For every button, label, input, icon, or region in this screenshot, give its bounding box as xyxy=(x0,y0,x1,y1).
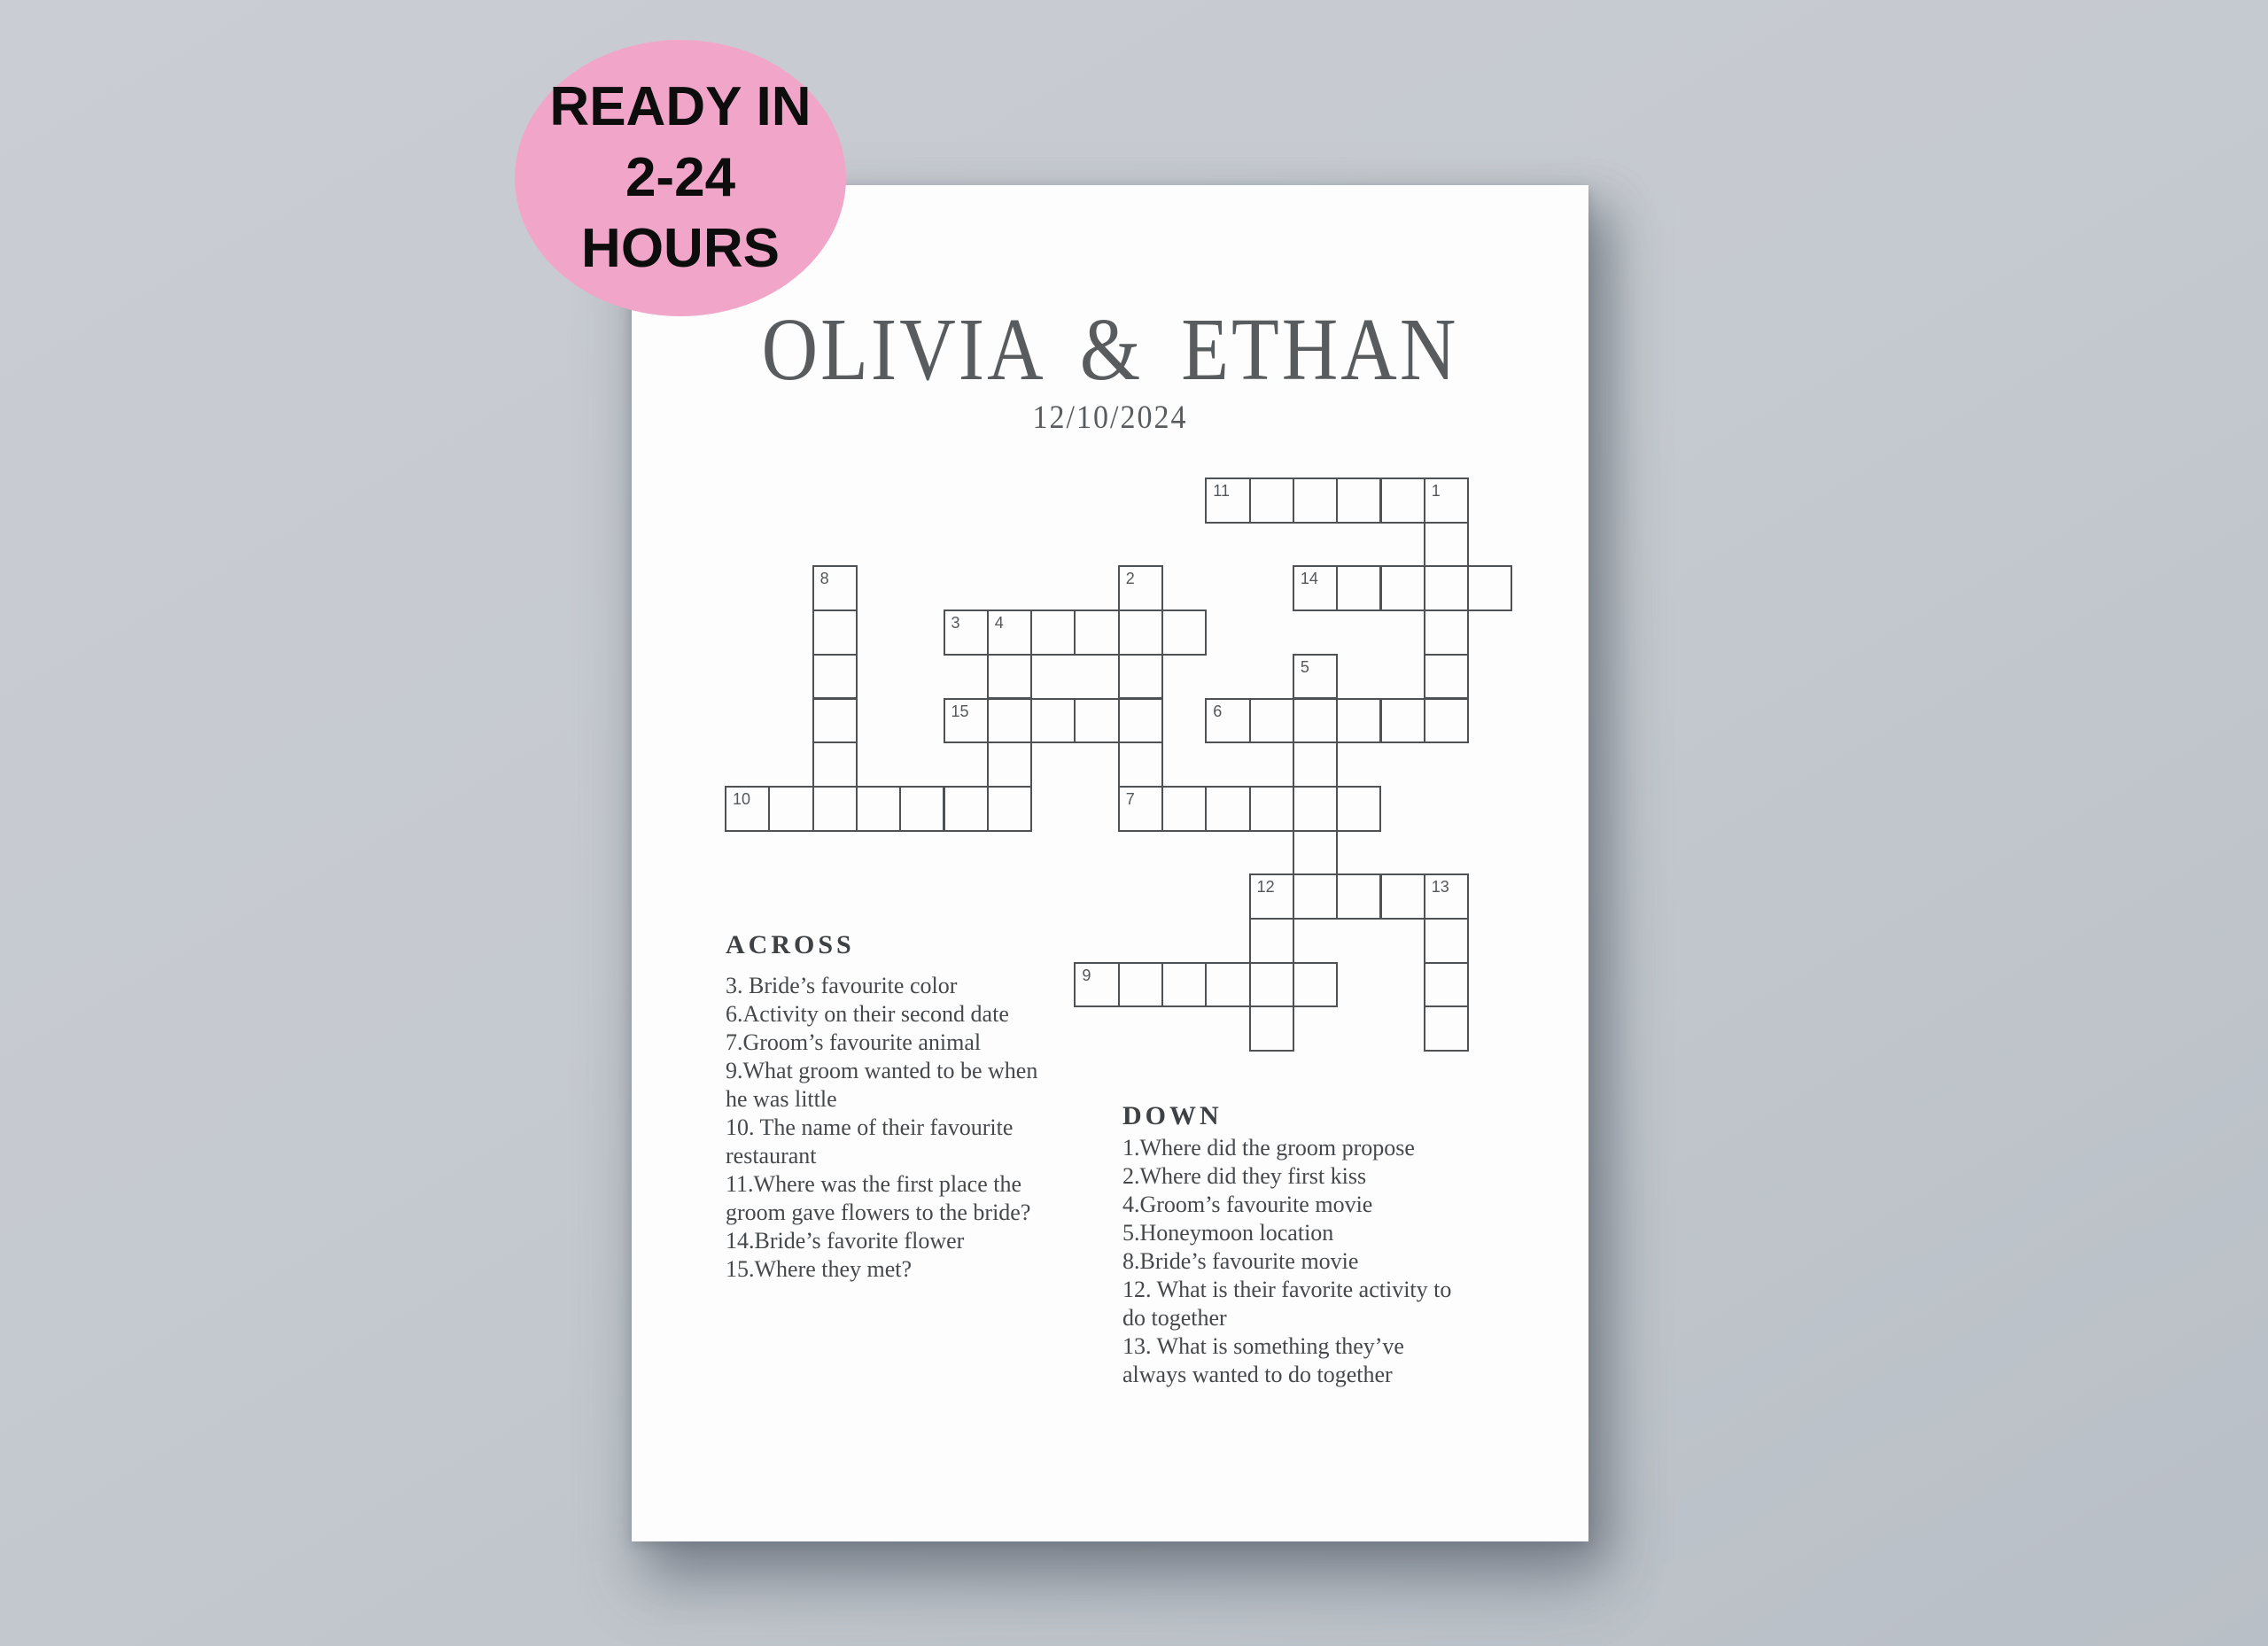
crossword-cell xyxy=(1380,565,1425,611)
down-heading: DOWN xyxy=(1122,1100,1223,1132)
clue: 5.Honeymoon location xyxy=(1122,1219,1539,1247)
cell-number: 10 xyxy=(726,788,768,808)
badge-line: 2-24 xyxy=(625,143,735,214)
clue: 3. Bride’s favourite color xyxy=(726,972,1133,1000)
crossword-cell xyxy=(1161,786,1207,832)
clue: 7.Groom’s favourite animal xyxy=(726,1029,1133,1057)
crossword-cell: 7 xyxy=(1118,786,1163,832)
crossword-cell xyxy=(1161,962,1207,1008)
cell-number: 8 xyxy=(814,567,856,587)
cell-number: 12 xyxy=(1251,875,1293,896)
crossword-cell xyxy=(1118,698,1163,744)
crossword-cell xyxy=(1380,873,1425,920)
crossword-cell xyxy=(1118,654,1163,700)
across-clues: 3. Bride’s favourite color6.Activity on … xyxy=(726,972,1133,1284)
crossword-cell xyxy=(1293,477,1338,524)
poster-date: 12/10/2024 xyxy=(632,399,1588,437)
crossword-cell xyxy=(1249,1005,1294,1052)
crossword-cell xyxy=(812,741,858,788)
crossword-cell xyxy=(1336,786,1381,832)
crossword-cell xyxy=(899,786,944,832)
crossword-cell xyxy=(1118,609,1163,656)
crossword-cell xyxy=(1336,477,1381,524)
clue: 9.What groom wanted to be when he was li… xyxy=(726,1057,1133,1114)
crossword-cell: 1 xyxy=(1424,477,1469,524)
clue: 2.Where did they first kiss xyxy=(1122,1162,1539,1191)
crossword-cell xyxy=(987,698,1032,744)
cell-number: 15 xyxy=(945,700,987,720)
crossword-cell xyxy=(856,786,901,832)
crossword-cell xyxy=(1293,873,1338,920)
crossword-cell xyxy=(1293,830,1338,876)
crossword-cell: 5 xyxy=(1293,654,1338,700)
crossword-cell xyxy=(1293,962,1338,1008)
crossword-cell xyxy=(1249,786,1294,832)
clue: 6.Activity on their second date xyxy=(726,1000,1133,1029)
crossword-cell xyxy=(1424,654,1469,700)
crossword-cell xyxy=(1424,522,1469,568)
crossword-cell: 4 xyxy=(987,609,1032,656)
crossword-grid: 111821434515610712139 xyxy=(725,477,1513,1052)
clue: 1.Where did the groom propose xyxy=(1122,1134,1539,1162)
crossword-cell xyxy=(1424,1005,1469,1052)
clue: 13. What is something they’ve always wan… xyxy=(1122,1332,1539,1389)
crossword-cell: 10 xyxy=(725,786,770,832)
clue: 15.Where they met? xyxy=(726,1255,1133,1284)
crossword-cell xyxy=(1161,609,1207,656)
crossword-cell xyxy=(812,609,858,656)
crossword-cell xyxy=(1336,698,1381,744)
cell-number: 5 xyxy=(1294,656,1336,676)
cell-number: 2 xyxy=(1120,567,1161,587)
crossword-cell xyxy=(1467,565,1512,611)
crossword-cell: 3 xyxy=(944,609,989,656)
stage-background: OLIVIA & ETHAN 12/10/2024 11182143451561… xyxy=(0,0,2268,1646)
across-heading: ACROSS xyxy=(726,929,855,961)
clue: 8.Bride’s favourite movie xyxy=(1122,1247,1539,1276)
crossword-cell xyxy=(1249,698,1294,744)
badge-line: HOURS xyxy=(581,214,780,284)
crossword-cell xyxy=(1293,698,1338,744)
clue: 12. What is their favorite activity to d… xyxy=(1122,1276,1539,1332)
cell-number: 3 xyxy=(945,611,987,632)
crossword-cell: 8 xyxy=(812,565,858,611)
cell-number: 14 xyxy=(1294,567,1336,587)
crossword-cell xyxy=(1030,609,1076,656)
crossword-cell xyxy=(987,741,1032,788)
crossword-cell xyxy=(812,698,858,744)
down-clues: 1.Where did the groom propose2.Where did… xyxy=(1122,1134,1539,1389)
crossword-cell xyxy=(1293,786,1338,832)
crossword-cell xyxy=(987,786,1032,832)
crossword-cell xyxy=(944,786,989,832)
crossword-cell: 14 xyxy=(1293,565,1338,611)
crossword-cell xyxy=(1249,477,1294,524)
clue: 14.Bride’s favorite flower xyxy=(726,1227,1133,1255)
crossword-cell xyxy=(1249,962,1294,1008)
crossword-poster: OLIVIA & ETHAN 12/10/2024 11182143451561… xyxy=(632,185,1588,1541)
cell-number: 4 xyxy=(989,611,1030,632)
poster-title: OLIVIA & ETHAN xyxy=(632,300,1588,401)
cell-number: 1 xyxy=(1425,479,1467,500)
crossword-cell: 13 xyxy=(1424,873,1469,920)
crossword-cell xyxy=(1030,698,1076,744)
crossword-cell xyxy=(1424,698,1469,744)
crossword-cell xyxy=(1380,698,1425,744)
crossword-cell: 15 xyxy=(944,698,989,744)
crossword-cell: 2 xyxy=(1118,565,1163,611)
badge-line: READY IN xyxy=(549,72,811,143)
crossword-cell: 6 xyxy=(1205,698,1250,744)
crossword-cell xyxy=(1380,477,1425,524)
crossword-cell: 11 xyxy=(1205,477,1250,524)
crossword-cell xyxy=(1424,918,1469,964)
ready-time-badge: READY IN 2-24 HOURS xyxy=(515,40,846,316)
crossword-cell xyxy=(1336,565,1381,611)
clue: 10. The name of their favourite restaura… xyxy=(726,1114,1133,1170)
cell-number: 7 xyxy=(1120,788,1161,808)
crossword-cell xyxy=(1249,918,1294,964)
crossword-cell xyxy=(768,786,813,832)
crossword-cell xyxy=(1074,698,1119,744)
clue: 11.Where was the first place the groom g… xyxy=(726,1170,1133,1227)
crossword-cell xyxy=(987,654,1032,700)
crossword-cell xyxy=(1205,962,1250,1008)
crossword-cell xyxy=(1424,609,1469,656)
crossword-cell xyxy=(1424,962,1469,1008)
crossword-cell xyxy=(1424,565,1469,611)
crossword-cell xyxy=(1074,609,1119,656)
crossword-cell xyxy=(812,654,858,700)
clue: 4.Groom’s favourite movie xyxy=(1122,1191,1539,1219)
crossword-cell xyxy=(812,786,858,832)
cell-number: 11 xyxy=(1207,479,1248,500)
cell-number: 13 xyxy=(1425,875,1467,896)
crossword-cell: 12 xyxy=(1249,873,1294,920)
crossword-cell xyxy=(1118,741,1163,788)
crossword-cell xyxy=(1205,786,1250,832)
crossword-cell xyxy=(1293,741,1338,788)
crossword-cell xyxy=(1336,873,1381,920)
cell-number: 6 xyxy=(1207,700,1248,720)
